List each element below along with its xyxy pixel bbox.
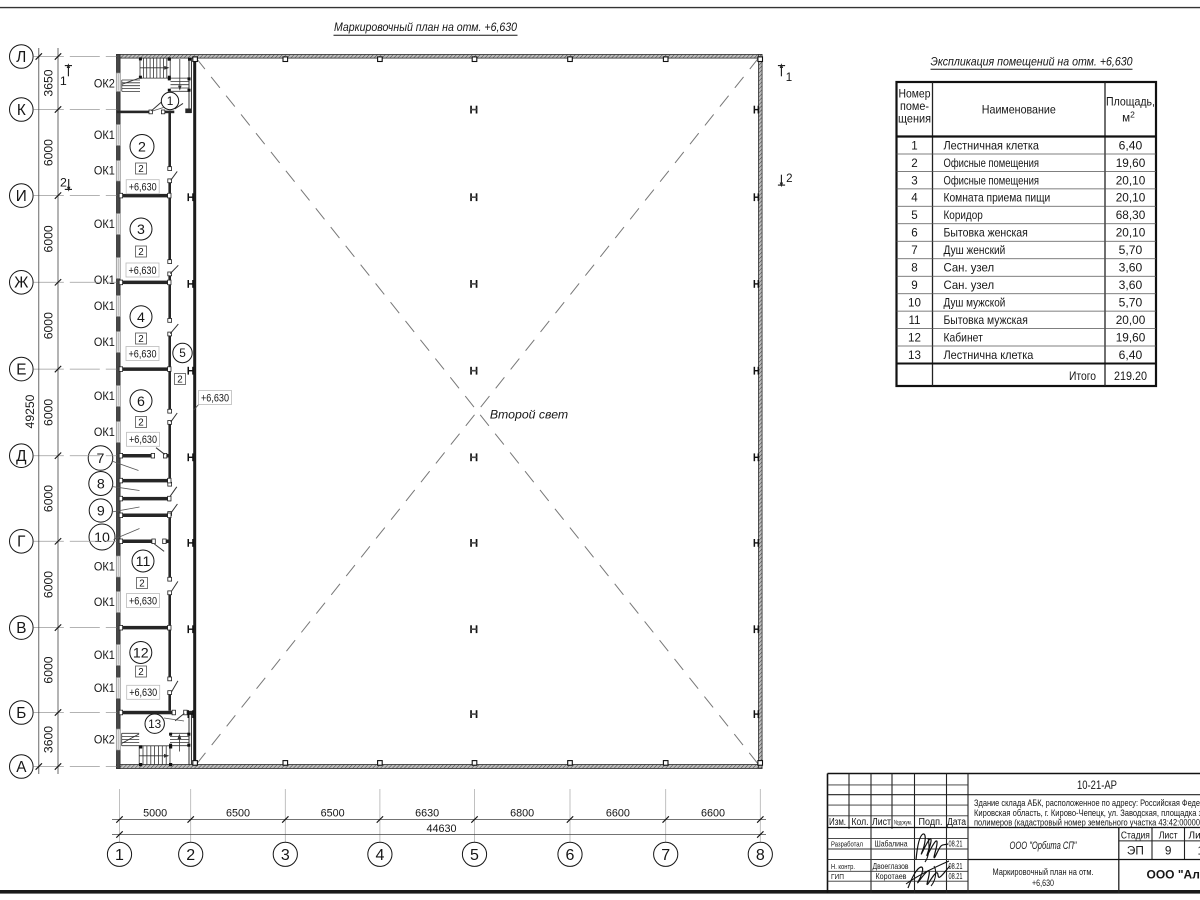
svg-text:ГИП: ГИП [831,872,844,881]
svg-text:№докум.: №докум. [894,820,912,827]
svg-text:Площадь,: Площадь, [1106,96,1155,109]
svg-text:Сан. узел: Сан. узел [944,279,995,292]
svg-text:Коридор: Коридор [944,209,983,222]
svg-text:5: 5 [470,847,479,864]
svg-text:1: 1 [911,139,917,152]
svg-text:6800: 6800 [510,808,534,820]
svg-text:6000: 6000 [42,656,56,683]
svg-text:Душ мужской: Душ мужской [944,297,1006,310]
svg-text:Д: Д [16,448,27,465]
svg-text:+6,630: +6,630 [129,595,157,607]
svg-text:Разработал: Разработал [831,839,863,848]
svg-text:5,70: 5,70 [1119,297,1143,310]
svg-text:1: 1 [60,74,67,88]
svg-text:ОК1: ОК1 [94,425,115,439]
svg-text:Номер: Номер [899,88,931,101]
svg-text:Второй свет: Второй свет [490,408,568,422]
svg-text:Б: Б [16,705,26,722]
svg-text:Бытовка женская: Бытовка женская [944,227,1028,240]
svg-text:6000: 6000 [42,225,56,252]
svg-text:6500: 6500 [226,808,250,820]
svg-text:полимеров (кадастровый номер з: полимеров (кадастровый номер земельного … [974,818,1200,828]
svg-text:ОК1: ОК1 [94,648,115,662]
svg-text:2: 2 [177,374,182,385]
svg-text:6,40: 6,40 [1119,139,1143,152]
svg-text:ООО "Альянс: ООО "Альянс [1147,868,1200,882]
svg-text:5: 5 [911,209,917,222]
svg-text:3600: 3600 [42,726,56,753]
svg-text:Г: Г [17,534,25,551]
svg-text:ОК1: ОК1 [94,560,115,574]
svg-text:Экспликация помещений на отм.: Экспликация помещений на отм. +6,630 [931,55,1133,69]
svg-text:Офисные помещения: Офисные помещения [944,174,1040,187]
svg-text:4: 4 [375,847,384,864]
svg-text:ОК1: ОК1 [94,389,115,403]
svg-text:68,30: 68,30 [1116,209,1146,222]
svg-text:Двоеглазов: Двоеглазов [873,862,909,871]
svg-text:8: 8 [911,262,917,275]
svg-text:Шабалина: Шабалина [875,839,908,848]
svg-text:3: 3 [137,222,145,238]
svg-text:9: 9 [1165,844,1172,858]
svg-text:5: 5 [179,346,186,360]
svg-text:7: 7 [661,847,670,864]
svg-text:7: 7 [97,451,105,467]
svg-text:19,60: 19,60 [1116,157,1146,170]
svg-text:3,60: 3,60 [1119,262,1143,275]
svg-text:2: 2 [186,847,195,864]
svg-text:ОК1: ОК1 [94,595,115,609]
svg-text:2: 2 [139,578,144,589]
svg-text:8: 8 [756,847,765,864]
svg-text:Изм.: Изм. [829,817,846,828]
svg-text:6600: 6600 [701,808,725,820]
svg-text:Офисные помещения: Офисные помещения [944,157,1040,170]
svg-text:1: 1 [786,72,792,84]
svg-text:Стадия: Стадия [1121,831,1150,842]
svg-text:ОК2: ОК2 [94,733,115,747]
svg-text:6600: 6600 [606,808,630,820]
svg-text:12: 12 [133,646,149,662]
svg-text:ООО "Орбита СП": ООО "Орбита СП" [1010,840,1078,852]
svg-text:Душ женский: Душ женский [944,244,1006,257]
svg-text:11: 11 [136,554,151,570]
svg-text:4: 4 [911,192,918,205]
svg-text:Кировская область, г. Кирово-Ч: Кировская область, г. Кирово-Чепецк, ул.… [974,808,1200,818]
svg-text:щения: щения [898,113,931,126]
svg-text:08.21: 08.21 [949,839,963,848]
svg-text:219.20: 219.20 [1114,370,1147,383]
svg-text:6: 6 [911,227,917,240]
svg-text:А: А [16,759,27,776]
svg-text:ОК1: ОК1 [94,164,115,178]
svg-text:Л: Л [16,49,26,66]
svg-text:2: 2 [138,140,146,156]
svg-text:ОК1: ОК1 [94,217,115,231]
svg-text:19,60: 19,60 [1116,331,1146,344]
svg-text:Ли: Ли [1189,831,1200,842]
svg-text:В: В [16,620,26,637]
svg-text:Здание склада АБК, расположенн: Здание склада АБК, расположенное по адре… [974,798,1200,808]
svg-text:Н. контр.: Н. контр. [831,862,855,871]
svg-text:10: 10 [94,530,110,546]
svg-text:6000: 6000 [42,139,56,166]
svg-text:2: 2 [60,176,67,190]
svg-text:2: 2 [138,164,143,175]
svg-text:И: И [16,188,27,205]
svg-text:ОК1: ОК1 [94,681,115,695]
svg-text:+6,630: +6,630 [129,182,157,194]
svg-text:Дата: Дата [947,817,966,828]
svg-text:Маркировочный план на отм. +6,: Маркировочный план на отм. +6,630 [334,20,517,34]
svg-text:20,10: 20,10 [1116,192,1146,205]
svg-text:Лист: Лист [1159,831,1178,842]
svg-text:6000: 6000 [42,399,56,426]
svg-text:6000: 6000 [42,485,56,512]
svg-text:20,10: 20,10 [1116,227,1146,240]
svg-text:6: 6 [566,847,575,864]
svg-text:8: 8 [97,477,105,493]
svg-text:12: 12 [908,331,921,344]
svg-text:2: 2 [138,667,143,678]
svg-text:3650: 3650 [42,69,56,96]
svg-text:6000: 6000 [42,571,56,598]
svg-text:1: 1 [167,94,174,108]
svg-text:+6,630: +6,630 [129,687,157,699]
svg-text:3: 3 [911,174,917,187]
svg-text:Бытовка мужская: Бытовка мужская [944,314,1028,327]
svg-text:08.21: 08.21 [949,872,963,881]
svg-text:ОК1: ОК1 [94,299,115,313]
svg-text:Наименование: Наименование [982,104,1056,117]
svg-text:20,10: 20,10 [1116,174,1146,187]
svg-text:Подп.: Подп. [919,817,943,828]
svg-text:44630: 44630 [426,823,456,835]
svg-text:Комната приема пищи: Комната приема пищи [944,192,1051,205]
svg-text:9: 9 [97,504,105,520]
svg-text:2: 2 [911,157,917,170]
svg-text:ЭП: ЭП [1127,844,1144,858]
svg-text:6500: 6500 [321,808,345,820]
svg-text:10: 10 [908,297,921,310]
svg-text:ОК1: ОК1 [94,335,115,349]
svg-text:11: 11 [908,314,920,327]
svg-text:6630: 6630 [415,808,439,820]
svg-text:2: 2 [786,173,792,185]
svg-text:Лестнична клетка: Лестнична клетка [944,349,1034,362]
svg-text:Е: Е [16,362,26,379]
svg-text:К: К [17,102,26,119]
svg-text:4: 4 [137,310,145,326]
svg-text:5000: 5000 [143,808,167,820]
svg-text:6,40: 6,40 [1119,349,1143,362]
svg-text:6000: 6000 [42,312,56,339]
svg-text:5,70: 5,70 [1119,244,1143,257]
svg-text:+6,630: +6,630 [201,392,229,404]
svg-text:1: 1 [115,847,124,864]
svg-text:поме-: поме- [900,100,929,113]
svg-text:Ж: Ж [14,275,28,292]
svg-text:2: 2 [138,417,143,428]
svg-text:Маркировочный план на отм.: Маркировочный план на отм. [993,867,1094,878]
svg-text:08.21: 08.21 [949,862,963,871]
svg-text:Лист: Лист [872,817,891,828]
svg-text:2: 2 [138,334,143,345]
svg-text:6: 6 [137,394,145,410]
svg-text:49250: 49250 [23,394,37,428]
svg-text:7: 7 [911,244,917,257]
svg-text:3: 3 [281,847,290,864]
svg-text:+6,630: +6,630 [129,348,157,360]
svg-text:3,60: 3,60 [1119,279,1143,292]
svg-text:Коротаев: Коротаев [876,872,907,881]
svg-text:+6,630: +6,630 [1032,878,1054,889]
svg-text:9: 9 [911,279,917,292]
svg-text:+6,630: +6,630 [129,434,157,446]
svg-text:2: 2 [138,247,143,258]
svg-text:ОК1: ОК1 [94,273,115,287]
svg-text:ОК1: ОК1 [94,128,115,142]
svg-text:Лестничная клетка: Лестничная клетка [944,139,1040,152]
svg-text:Кабинет: Кабинет [944,331,984,344]
svg-text:13: 13 [908,349,921,362]
svg-text:10-21-АР: 10-21-АР [1077,779,1117,792]
svg-text:ОК2: ОК2 [94,77,115,91]
svg-text:13: 13 [148,717,162,731]
svg-text:Кол.: Кол. [852,817,869,828]
svg-text:Сан. узел: Сан. узел [944,262,995,275]
svg-text:Итого: Итого [1069,370,1096,383]
svg-text:20,00: 20,00 [1116,314,1146,327]
svg-text:+6,630: +6,630 [129,265,157,277]
